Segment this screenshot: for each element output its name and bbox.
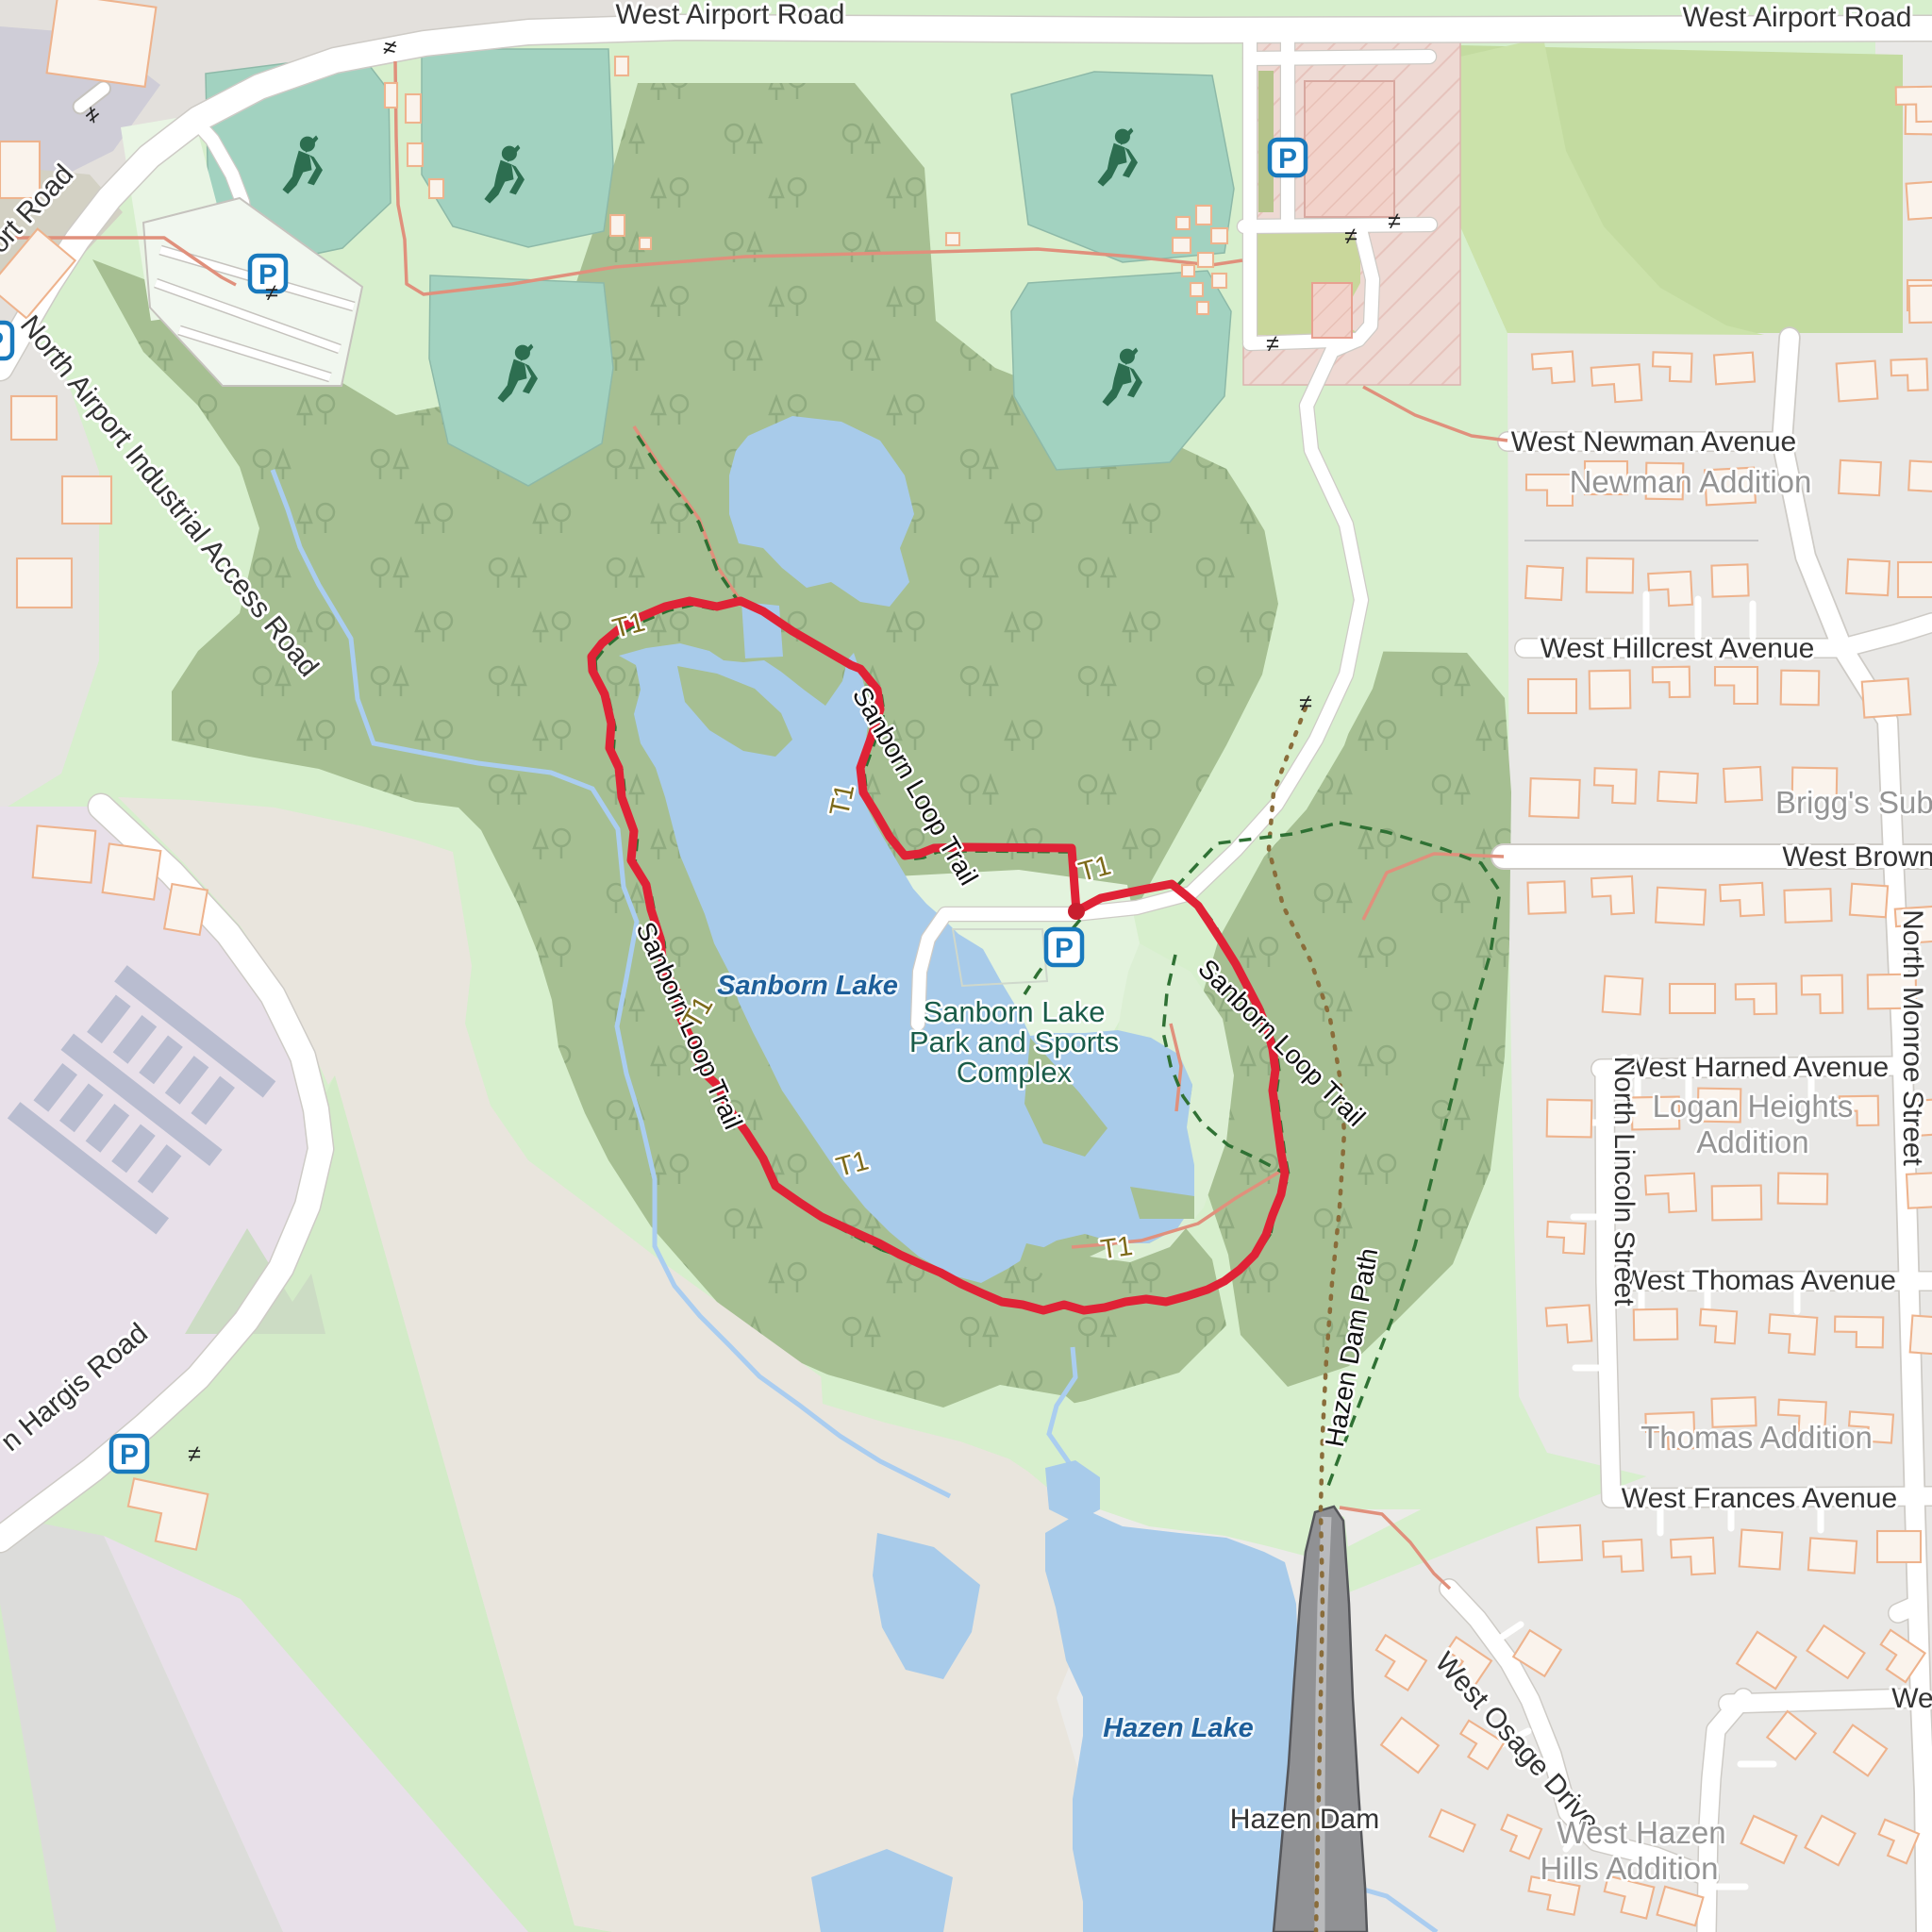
- svg-text:West Hillcrest Avenue: West Hillcrest Avenue: [1541, 633, 1815, 664]
- svg-text:West Airport Road: West Airport Road: [1683, 2, 1912, 33]
- svg-text:Park and Sports: Park and Sports: [909, 1025, 1119, 1058]
- svg-text:Hazen Dam: Hazen Dam: [1230, 1804, 1379, 1835]
- svg-text:West Frances Avenue: West Frances Avenue: [1622, 1483, 1897, 1514]
- svg-text:≠: ≠: [265, 280, 278, 307]
- svg-text:West Newman Avenue: West Newman Avenue: [1511, 426, 1796, 458]
- svg-text:Hills Addition: Hills Addition: [1541, 1851, 1719, 1886]
- svg-text:≠: ≠: [1388, 208, 1401, 235]
- svg-text:West Thomas Avenue: West Thomas Avenue: [1621, 1265, 1896, 1296]
- svg-text:≠: ≠: [1266, 331, 1279, 358]
- svg-text:Newman Addition: Newman Addition: [1570, 464, 1812, 499]
- svg-text:P: P: [1278, 143, 1297, 175]
- svg-text:P: P: [1055, 933, 1074, 964]
- svg-text:West Brown: West Brown: [1782, 841, 1932, 873]
- svg-text:≠: ≠: [1344, 224, 1357, 250]
- svg-text:T1: T1: [1099, 1231, 1135, 1265]
- svg-text:Sanborn Lake: Sanborn Lake: [923, 995, 1105, 1028]
- svg-text:West Airport Road: West Airport Road: [616, 0, 845, 30]
- svg-text:North Monroe Street: North Monroe Street: [1897, 909, 1928, 1166]
- svg-text:Addition: Addition: [1696, 1124, 1808, 1159]
- svg-text:≠: ≠: [1299, 691, 1312, 717]
- svg-text:Wes: Wes: [1891, 1683, 1932, 1714]
- svg-text:Logan Heights: Logan Heights: [1653, 1089, 1854, 1124]
- svg-text:Sanborn Lake: Sanborn Lake: [717, 971, 898, 1001]
- svg-text:P: P: [0, 326, 4, 358]
- svg-text:P: P: [120, 1440, 139, 1471]
- svg-text:Hazen Lake: Hazen Lake: [1103, 1713, 1254, 1743]
- svg-text:≠: ≠: [188, 1441, 201, 1468]
- svg-text:Complex: Complex: [957, 1056, 1073, 1089]
- svg-text:West Harned Avenue: West Harned Avenue: [1623, 1052, 1889, 1083]
- svg-text:North Lincoln Street: North Lincoln Street: [1608, 1056, 1640, 1307]
- svg-text:West Hazen: West Hazen: [1557, 1815, 1725, 1850]
- svg-text:Brigg's Subd: Brigg's Subd: [1775, 785, 1932, 820]
- svg-text:Thomas Addition: Thomas Addition: [1641, 1420, 1873, 1455]
